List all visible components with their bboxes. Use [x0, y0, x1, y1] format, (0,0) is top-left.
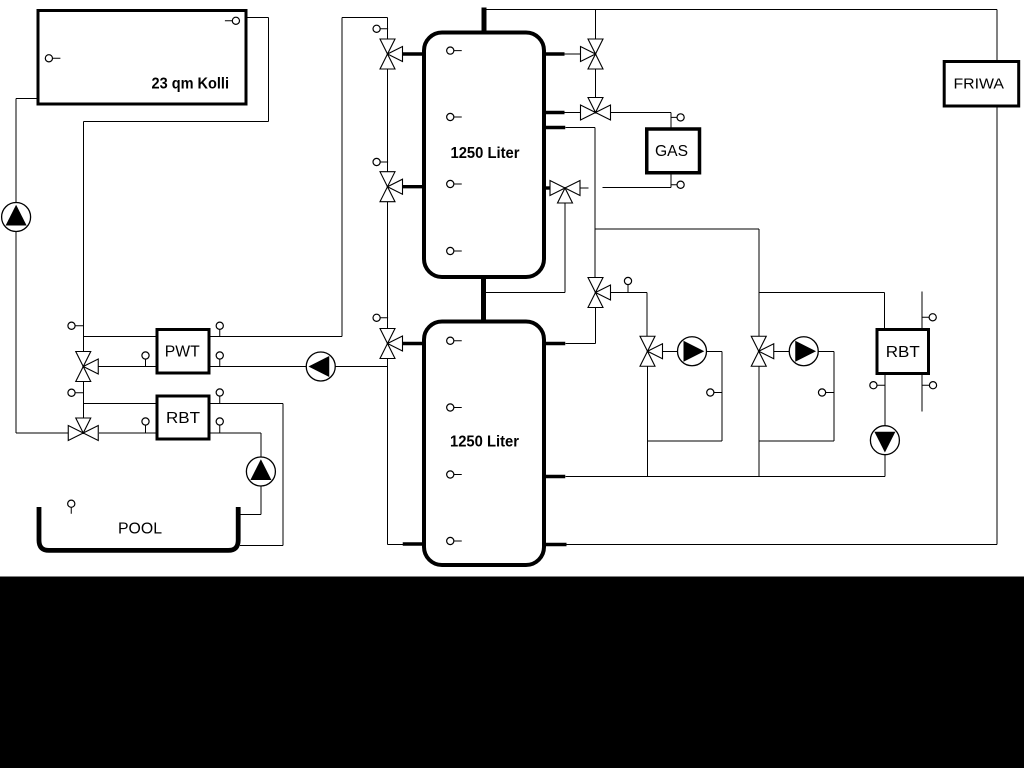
svg-text:RBT: RBT: [886, 344, 920, 361]
svg-text:23 qm Kolli: 23 qm Kolli: [152, 76, 230, 93]
svg-text:POOL: POOL: [118, 520, 162, 537]
svg-text:1250 Liter: 1250 Liter: [451, 145, 520, 162]
svg-text:PWT: PWT: [165, 344, 200, 361]
svg-text:RBT: RBT: [166, 410, 200, 427]
svg-text:GAS: GAS: [655, 143, 688, 160]
svg-text:1250 Liter: 1250 Liter: [450, 433, 519, 450]
svg-text:FRIWA: FRIWA: [954, 75, 1005, 92]
